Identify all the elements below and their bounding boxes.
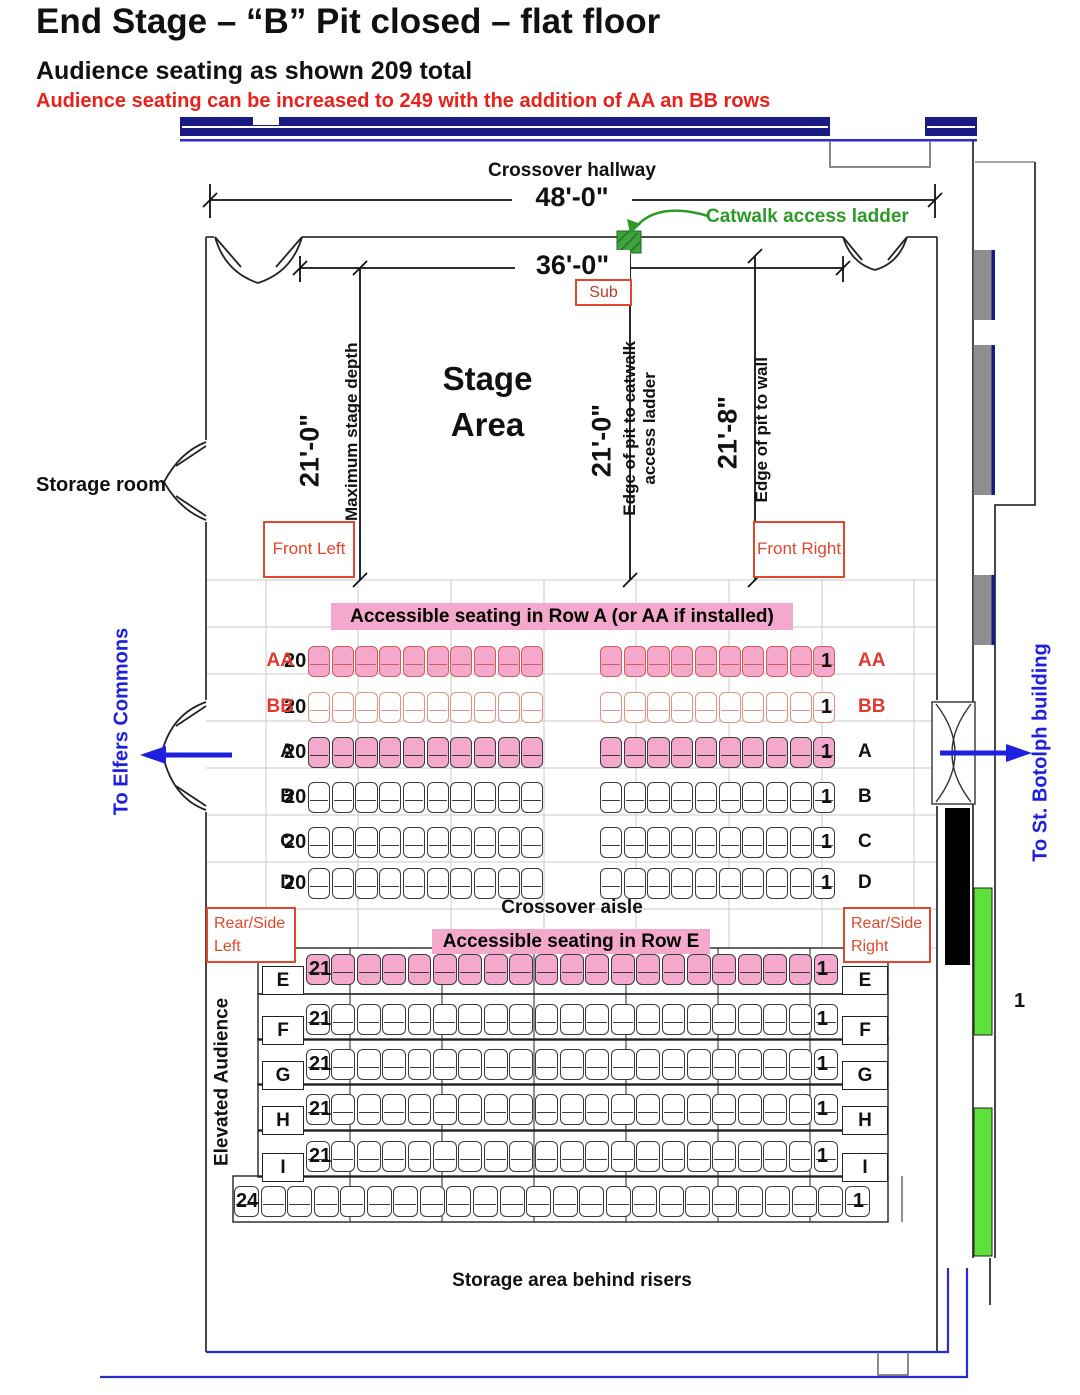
- seat: [433, 1141, 457, 1172]
- row-number-right: 1: [806, 651, 832, 671]
- row-label-left: BB: [246, 697, 294, 716]
- seat: [433, 1049, 457, 1080]
- seat: [766, 868, 788, 899]
- seat: [382, 1094, 406, 1125]
- seat: [560, 1141, 584, 1172]
- seat: [498, 827, 520, 858]
- row-number-left: 21: [309, 1054, 331, 1074]
- seat: [560, 1094, 584, 1125]
- seat: [585, 1141, 609, 1172]
- seat: [553, 1186, 578, 1217]
- seat: [611, 1049, 635, 1080]
- seat: [433, 1094, 457, 1125]
- seat: [379, 737, 401, 768]
- seat: [355, 782, 377, 813]
- catwalk-ladder-label: Catwalk access ladder: [706, 206, 909, 228]
- front-right-box: Front Right: [753, 521, 845, 578]
- seat: [450, 692, 472, 723]
- seat: [308, 737, 330, 768]
- seat: [379, 868, 401, 899]
- seat: [636, 954, 660, 985]
- seat: [393, 1186, 418, 1217]
- seat: [719, 827, 741, 858]
- row-label-right: A: [858, 742, 872, 761]
- seat: [355, 827, 377, 858]
- row-label-left: A: [246, 742, 294, 761]
- seat: [408, 1141, 432, 1172]
- seat: [535, 1004, 559, 1035]
- seat: [450, 737, 472, 768]
- seat: [671, 646, 693, 677]
- seat: [450, 646, 472, 677]
- row-number-right: 1: [800, 959, 828, 979]
- seat: [498, 646, 520, 677]
- seat: [765, 1186, 790, 1217]
- seat: [624, 646, 646, 677]
- dim-36: 36'-0": [515, 250, 630, 281]
- seat: [636, 1049, 660, 1080]
- seat: [647, 782, 669, 813]
- seat: [521, 737, 543, 768]
- seat: [484, 1049, 508, 1080]
- crossover-hallway-label: Crossover hallway: [372, 160, 772, 182]
- seat: [611, 1094, 635, 1125]
- seat: [314, 1186, 339, 1217]
- seat: [738, 1141, 762, 1172]
- seat: [473, 1186, 498, 1217]
- seat: [332, 692, 354, 723]
- seat: [766, 827, 788, 858]
- row-label-right: B: [858, 787, 872, 806]
- seat: [695, 692, 717, 723]
- seat: [738, 1004, 762, 1035]
- seat: [662, 1094, 686, 1125]
- seat: [560, 1049, 584, 1080]
- dim-48: 48'-0": [512, 182, 632, 213]
- seat: [611, 1004, 635, 1035]
- seat: [585, 1049, 609, 1080]
- seat: [585, 1004, 609, 1035]
- seat: [484, 1004, 508, 1035]
- seat: [647, 737, 669, 768]
- seat: [379, 782, 401, 813]
- row-label-left: C: [246, 832, 294, 851]
- row-label-right: G: [842, 1061, 888, 1090]
- seat: [427, 827, 449, 858]
- seat: [408, 954, 432, 985]
- seat: [355, 868, 377, 899]
- seat: [382, 954, 406, 985]
- row-label-right: I: [842, 1153, 888, 1182]
- row-label-right: BB: [858, 697, 885, 716]
- seat: [474, 692, 496, 723]
- seat: [600, 827, 622, 858]
- seat: [763, 1094, 787, 1125]
- rear-side-left-box: Rear/Side Left: [206, 907, 296, 963]
- seat: [355, 646, 377, 677]
- seat: [521, 692, 543, 723]
- seat: [450, 827, 472, 858]
- seat: [509, 1094, 533, 1125]
- seat: [763, 954, 787, 985]
- to-botolph-label: To St. Botolph building: [1030, 638, 1053, 868]
- row-label-left: D: [246, 873, 294, 892]
- seat: [521, 868, 543, 899]
- seat: [331, 1004, 355, 1035]
- seat: [403, 646, 425, 677]
- seat: [332, 737, 354, 768]
- seat: [763, 1141, 787, 1172]
- row-label-left: AA: [246, 651, 294, 670]
- seat: [606, 1186, 631, 1217]
- seat: [427, 692, 449, 723]
- seat: [509, 1004, 533, 1035]
- seat: [585, 954, 609, 985]
- seat: [719, 868, 741, 899]
- seat: [408, 1049, 432, 1080]
- seat: [712, 1186, 737, 1217]
- seat: [261, 1186, 286, 1217]
- seat: [308, 827, 330, 858]
- seat: [382, 1004, 406, 1035]
- seat: [498, 737, 520, 768]
- seat: [340, 1186, 365, 1217]
- seat: [403, 868, 425, 899]
- seat: [738, 954, 762, 985]
- seat: [484, 954, 508, 985]
- seat: [526, 1186, 551, 1217]
- seat: [332, 646, 354, 677]
- rear-side-left-line2: Left: [214, 935, 294, 958]
- seat: [408, 1004, 432, 1035]
- row-label-left: G: [262, 1061, 304, 1090]
- seat: [636, 1141, 660, 1172]
- seat: [792, 1186, 817, 1217]
- rear-side-right-line1: Rear/Side: [851, 912, 929, 935]
- seat: [308, 782, 330, 813]
- seat: [560, 954, 584, 985]
- accessible-row-e-banner: Accessible seating in Row E: [432, 929, 710, 954]
- seat: [695, 737, 717, 768]
- seat: [403, 827, 425, 858]
- seat: [766, 737, 788, 768]
- seat: [332, 827, 354, 858]
- seat: [308, 868, 330, 899]
- seat: [687, 954, 711, 985]
- row-number-right: 1: [806, 873, 832, 893]
- seat: [458, 1141, 482, 1172]
- seat: [671, 782, 693, 813]
- seat: [560, 1004, 584, 1035]
- seat: [433, 954, 457, 985]
- seat: [742, 782, 764, 813]
- seat: [695, 782, 717, 813]
- seat: [484, 1141, 508, 1172]
- seat: [687, 1094, 711, 1125]
- seat: [738, 1186, 763, 1217]
- front-left-box: Front Left: [263, 521, 355, 578]
- seat: [420, 1186, 445, 1217]
- row-number-right: 1: [806, 832, 832, 852]
- accessible-row-a-banner: Accessible seating in Row A (or AA if in…: [331, 603, 793, 630]
- page-subtitle: Audience seating as shown 209 total: [36, 57, 472, 86]
- seat: [719, 646, 741, 677]
- seat: [379, 827, 401, 858]
- row-label-left: H: [262, 1106, 304, 1135]
- row-number-left: 21: [309, 1099, 331, 1119]
- seat: [382, 1141, 406, 1172]
- seat: [458, 1094, 482, 1125]
- storage-room-label: Storage room: [36, 474, 166, 497]
- seat: [662, 954, 686, 985]
- seat: [671, 737, 693, 768]
- row-label-right: D: [858, 873, 872, 892]
- seat: [695, 646, 717, 677]
- seat: [671, 692, 693, 723]
- seat: [427, 868, 449, 899]
- seat: [535, 1094, 559, 1125]
- seat: [379, 692, 401, 723]
- row-number-left: 21: [309, 1146, 331, 1166]
- seat: [685, 1186, 710, 1217]
- seat: [719, 737, 741, 768]
- right-marker: 1: [1014, 990, 1025, 1013]
- seat: [719, 692, 741, 723]
- row-number-left: 21: [309, 1009, 331, 1029]
- seat: [611, 1141, 635, 1172]
- seat: [509, 954, 533, 985]
- seat: [521, 827, 543, 858]
- seat: [662, 1004, 686, 1035]
- row-label-left: B: [246, 787, 294, 806]
- seat: [450, 868, 472, 899]
- seat: [357, 1004, 381, 1035]
- seat: [712, 954, 736, 985]
- floor-plan: End Stage – “B” Pit closed – flat floor …: [0, 0, 1080, 1395]
- seat: [742, 868, 764, 899]
- seat: [636, 1094, 660, 1125]
- seat: [379, 646, 401, 677]
- seat: [446, 1186, 471, 1217]
- row-label-left: F: [262, 1016, 304, 1045]
- seat: [474, 868, 496, 899]
- storage-behind-risers-label: Storage area behind risers: [372, 1270, 772, 1292]
- seat: [636, 1004, 660, 1035]
- rear-side-left-line1: Rear/Side: [214, 912, 294, 935]
- seat: [498, 692, 520, 723]
- seat: [600, 646, 622, 677]
- edge-pit-wall-label: Edge of pit to wall: [752, 335, 772, 525]
- seat: [355, 737, 377, 768]
- seat: [498, 868, 520, 899]
- seat: [600, 737, 622, 768]
- seat: [308, 646, 330, 677]
- seat: [332, 782, 354, 813]
- seat: [521, 782, 543, 813]
- seat: [719, 782, 741, 813]
- rear-side-right-line2: Right: [851, 935, 929, 958]
- seat: [433, 1004, 457, 1035]
- seat: [331, 1094, 355, 1125]
- capacity-note: Audience seating can be increased to 249…: [36, 90, 770, 113]
- row-number-right: 1: [838, 1191, 864, 1211]
- seat: [355, 692, 377, 723]
- crossover-aisle-label: Crossover aisle: [472, 897, 672, 919]
- seat: [738, 1094, 762, 1125]
- row-label-left: I: [262, 1153, 304, 1182]
- row-number-right: 1: [806, 742, 832, 762]
- row-label-right: E: [842, 966, 888, 995]
- seat: [712, 1094, 736, 1125]
- seat: [357, 1141, 381, 1172]
- elevated-audience-label: Elevated Audience: [212, 984, 234, 1179]
- dim-21-8: 21'-8": [712, 363, 743, 503]
- seat: [766, 692, 788, 723]
- seat: [509, 1141, 533, 1172]
- seat: [509, 1049, 533, 1080]
- seat: [738, 1049, 762, 1080]
- seat: [687, 1141, 711, 1172]
- seat: [712, 1141, 736, 1172]
- seat: [403, 782, 425, 813]
- seat: [671, 827, 693, 858]
- seat: [742, 646, 764, 677]
- seat: [632, 1186, 657, 1217]
- seat: [427, 782, 449, 813]
- seat: [624, 827, 646, 858]
- seat: [600, 782, 622, 813]
- seat: [521, 646, 543, 677]
- row-number-left: 24: [236, 1191, 258, 1211]
- seat: [766, 646, 788, 677]
- seat: [611, 954, 635, 985]
- seat: [585, 1094, 609, 1125]
- seat: [458, 1004, 482, 1035]
- seat: [742, 737, 764, 768]
- row-label-right: C: [858, 832, 872, 851]
- seat: [624, 692, 646, 723]
- seat: [662, 1049, 686, 1080]
- row-label-right: F: [842, 1016, 888, 1045]
- seat: [367, 1186, 392, 1217]
- seat: [624, 737, 646, 768]
- row-number-right: 1: [800, 1054, 828, 1074]
- seat: [484, 1094, 508, 1125]
- seat: [647, 646, 669, 677]
- seat: [287, 1186, 312, 1217]
- seat: [579, 1186, 604, 1217]
- seat: [763, 1049, 787, 1080]
- seat: [647, 868, 669, 899]
- row-number-right: 1: [800, 1099, 828, 1119]
- row-number-left: 21: [309, 959, 331, 979]
- seat: [403, 692, 425, 723]
- seat: [403, 737, 425, 768]
- rear-side-right-box: Rear/Side Right: [843, 907, 931, 963]
- seat: [687, 1004, 711, 1035]
- to-elfers-label: To Elfers Commons: [111, 587, 134, 857]
- seat: [763, 1004, 787, 1035]
- seat: [647, 692, 669, 723]
- dim-21-left: 21'-0": [294, 381, 325, 521]
- row-number-right: 1: [800, 1009, 828, 1029]
- seat: [308, 692, 330, 723]
- seat: [535, 1141, 559, 1172]
- row-label-right: AA: [858, 651, 885, 670]
- seat: [382, 1049, 406, 1080]
- seat: [671, 868, 693, 899]
- max-stage-depth-label: Maximum stage depth: [342, 307, 362, 557]
- seat: [331, 954, 355, 985]
- row-label-right: H: [842, 1106, 888, 1135]
- seat: [474, 782, 496, 813]
- seat: [357, 954, 381, 985]
- stage-area-label: Stage Area: [425, 356, 550, 448]
- seat: [498, 782, 520, 813]
- row-number-right: 1: [806, 697, 832, 717]
- seat: [427, 646, 449, 677]
- row-number-right: 1: [800, 1146, 828, 1166]
- seat: [474, 646, 496, 677]
- row-number-right: 1: [806, 787, 832, 807]
- seat: [474, 827, 496, 858]
- seat: [535, 1049, 559, 1080]
- seat: [500, 1186, 525, 1217]
- seat: [331, 1141, 355, 1172]
- seat: [427, 737, 449, 768]
- seat: [458, 954, 482, 985]
- seat: [742, 827, 764, 858]
- seat: [695, 827, 717, 858]
- seat: [687, 1049, 711, 1080]
- seat: [331, 1049, 355, 1080]
- row-label-left: E: [262, 966, 304, 995]
- page-title: End Stage – “B” Pit closed – flat floor: [36, 2, 660, 42]
- seat: [742, 692, 764, 723]
- seat: [766, 782, 788, 813]
- seat: [624, 868, 646, 899]
- dim-21-mid: 21'-0": [586, 371, 617, 511]
- seat: [458, 1049, 482, 1080]
- seat: [408, 1094, 432, 1125]
- edge-pit-catwalk-label: Edge of pit to catwalk access ladder: [620, 331, 661, 526]
- seat: [450, 782, 472, 813]
- seat: [474, 737, 496, 768]
- seat: [647, 827, 669, 858]
- seat: [695, 868, 717, 899]
- sub-box: Sub: [575, 279, 632, 306]
- seat: [535, 954, 559, 985]
- seat: [332, 868, 354, 899]
- seat: [662, 1141, 686, 1172]
- seat: [600, 692, 622, 723]
- seat: [712, 1004, 736, 1035]
- seat: [659, 1186, 684, 1217]
- seat: [357, 1049, 381, 1080]
- seat: [624, 782, 646, 813]
- seat: [357, 1094, 381, 1125]
- seat: [600, 868, 622, 899]
- seat: [712, 1049, 736, 1080]
